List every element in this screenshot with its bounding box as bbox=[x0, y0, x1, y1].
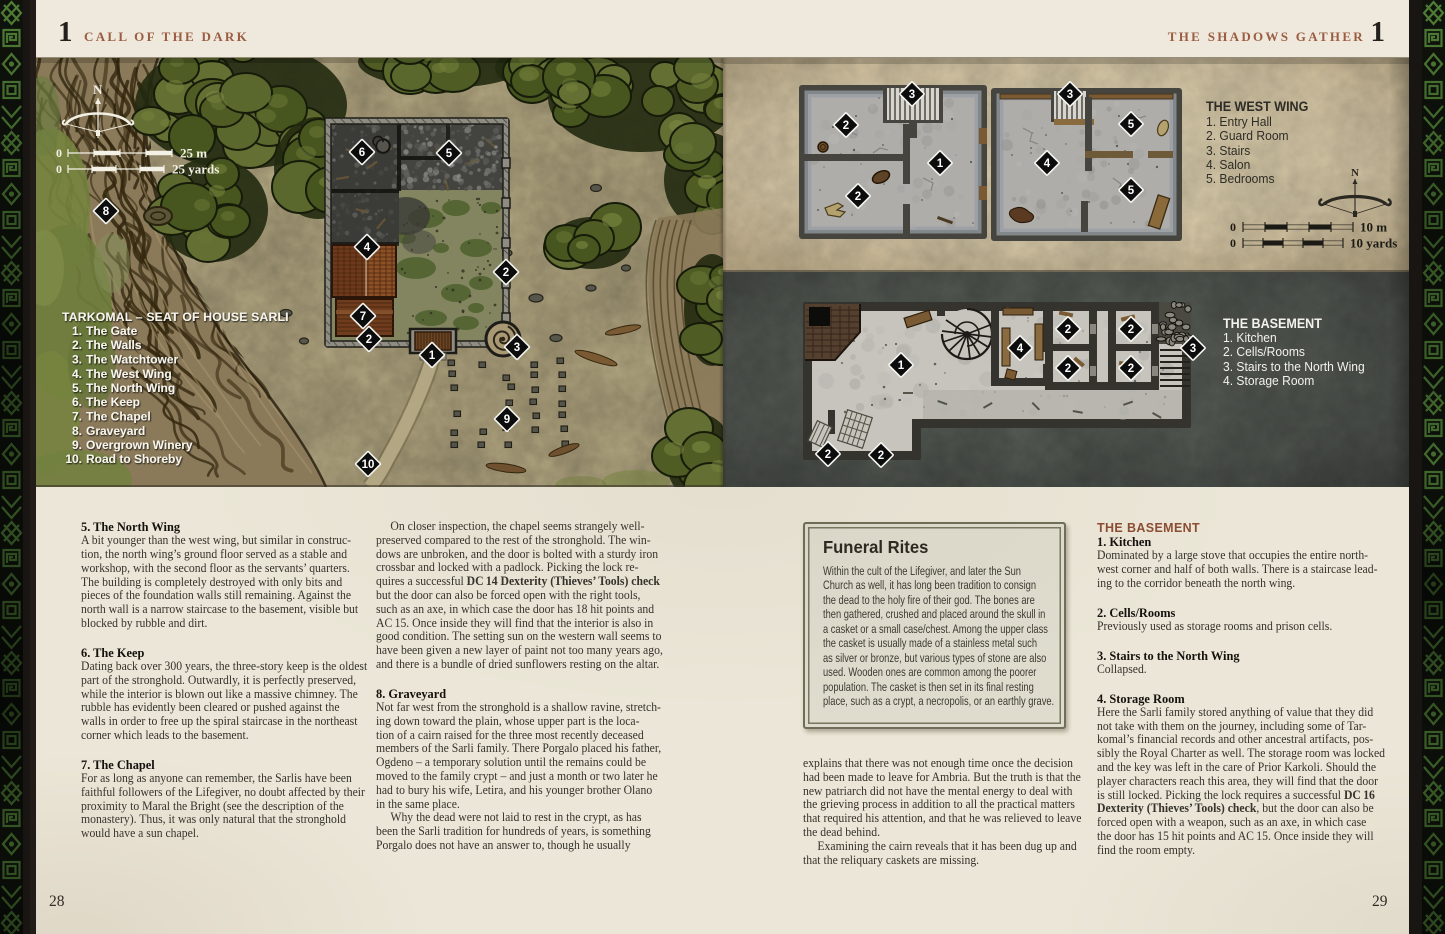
svg-text:3.: 3. bbox=[72, 353, 82, 367]
svg-text:0: 0 bbox=[1230, 220, 1236, 234]
svg-text:0: 0 bbox=[56, 146, 62, 160]
svg-text:2. Guard Room: 2. Guard Room bbox=[1206, 129, 1289, 143]
svg-text:3: 3 bbox=[1067, 89, 1073, 101]
svg-text:25 yards: 25 yards bbox=[172, 162, 219, 177]
svg-text:Road to Shoreby: Road to Shoreby bbox=[86, 452, 182, 466]
svg-text:N: N bbox=[93, 82, 103, 97]
svg-text:Overgrown Winery: Overgrown Winery bbox=[86, 438, 193, 452]
svg-text:4: 4 bbox=[1017, 343, 1024, 355]
svg-text:The Gate: The Gate bbox=[86, 324, 138, 338]
svg-text:2: 2 bbox=[855, 191, 861, 203]
svg-text:5.: 5. bbox=[72, 381, 82, 395]
svg-text:TARKOMAL – SEAT OF HOUSE SARLI: TARKOMAL – SEAT OF HOUSE SARLI bbox=[62, 310, 289, 324]
svg-text:The Chapel: The Chapel bbox=[86, 410, 151, 424]
svg-text:9: 9 bbox=[504, 414, 510, 426]
svg-text:3. Stairs to the North Wing: 3. Stairs to the North Wing bbox=[1223, 360, 1365, 374]
svg-text:THE WEST WING: THE WEST WING bbox=[1206, 99, 1308, 115]
svg-text:9.: 9. bbox=[72, 438, 82, 452]
svg-text:2: 2 bbox=[503, 267, 509, 279]
svg-text:3: 3 bbox=[1190, 343, 1196, 355]
svg-text:8.: 8. bbox=[72, 424, 82, 438]
svg-text:N: N bbox=[1351, 167, 1359, 179]
svg-text:4. Storage Room: 4. Storage Room bbox=[1223, 374, 1314, 388]
svg-text:3. Stairs: 3. Stairs bbox=[1206, 144, 1250, 158]
svg-text:1. Entry Hall: 1. Entry Hall bbox=[1206, 115, 1272, 129]
svg-text:4: 4 bbox=[1044, 158, 1051, 170]
svg-text:1. Kitchen: 1. Kitchen bbox=[1223, 331, 1277, 345]
svg-text:1: 1 bbox=[898, 360, 905, 372]
svg-text:4. Salon: 4. Salon bbox=[1206, 158, 1250, 172]
svg-text:2. Cells/Rooms: 2. Cells/Rooms bbox=[1223, 345, 1305, 359]
svg-text:10: 10 bbox=[362, 459, 375, 471]
svg-text:The West Wing: The West Wing bbox=[86, 367, 172, 381]
svg-text:2: 2 bbox=[1128, 363, 1134, 375]
svg-text:7: 7 bbox=[360, 311, 366, 323]
svg-text:2: 2 bbox=[1128, 324, 1134, 336]
svg-text:0: 0 bbox=[56, 162, 62, 176]
svg-text:5: 5 bbox=[446, 148, 453, 160]
svg-text:5: 5 bbox=[1128, 119, 1135, 131]
svg-text:Graveyard: Graveyard bbox=[86, 424, 145, 438]
svg-text:10.: 10. bbox=[65, 452, 82, 466]
svg-text:2.: 2. bbox=[72, 338, 82, 352]
svg-text:The Walls: The Walls bbox=[86, 338, 142, 352]
svg-text:1.: 1. bbox=[72, 324, 82, 338]
svg-text:1: 1 bbox=[937, 158, 944, 170]
svg-text:2: 2 bbox=[843, 120, 849, 132]
svg-text:4.: 4. bbox=[72, 367, 82, 381]
svg-text:25 m: 25 m bbox=[180, 146, 207, 161]
svg-text:6.: 6. bbox=[72, 395, 82, 409]
svg-text:The Watchtower: The Watchtower bbox=[86, 353, 179, 367]
svg-text:3: 3 bbox=[909, 89, 915, 101]
svg-text:5. Bedrooms: 5. Bedrooms bbox=[1206, 172, 1275, 186]
svg-text:10 m: 10 m bbox=[1360, 220, 1387, 235]
svg-text:The Keep: The Keep bbox=[86, 395, 140, 409]
svg-text:6: 6 bbox=[359, 147, 365, 159]
svg-text:The North Wing: The North Wing bbox=[86, 381, 175, 395]
svg-text:0: 0 bbox=[1230, 236, 1236, 250]
svg-text:7.: 7. bbox=[72, 410, 82, 424]
svg-text:2: 2 bbox=[825, 449, 831, 461]
svg-text:2: 2 bbox=[1065, 363, 1071, 375]
svg-text:5: 5 bbox=[1128, 185, 1135, 197]
svg-text:8: 8 bbox=[103, 206, 110, 218]
svg-text:4: 4 bbox=[364, 242, 371, 254]
svg-text:THE BASEMENT: THE BASEMENT bbox=[1223, 316, 1322, 332]
svg-text:2: 2 bbox=[366, 334, 372, 346]
svg-text:1: 1 bbox=[429, 350, 436, 362]
svg-text:2: 2 bbox=[878, 450, 884, 462]
svg-text:3: 3 bbox=[514, 342, 520, 354]
svg-text:2: 2 bbox=[1065, 324, 1071, 336]
